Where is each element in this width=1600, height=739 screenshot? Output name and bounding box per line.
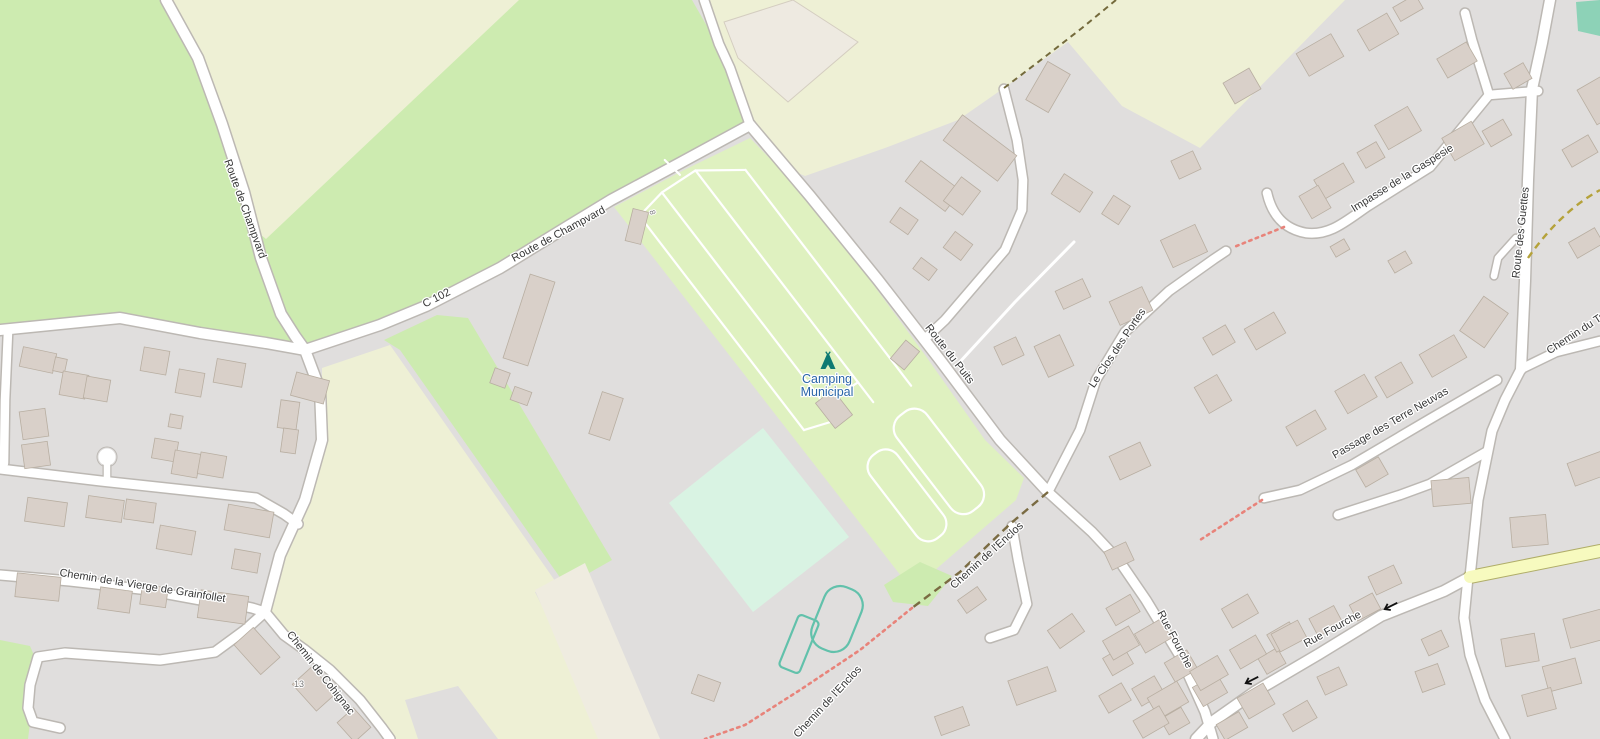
svg-text:Municipal: Municipal	[801, 385, 854, 399]
svg-text:Camping: Camping	[802, 372, 852, 386]
svg-text:13: 13	[294, 679, 304, 689]
